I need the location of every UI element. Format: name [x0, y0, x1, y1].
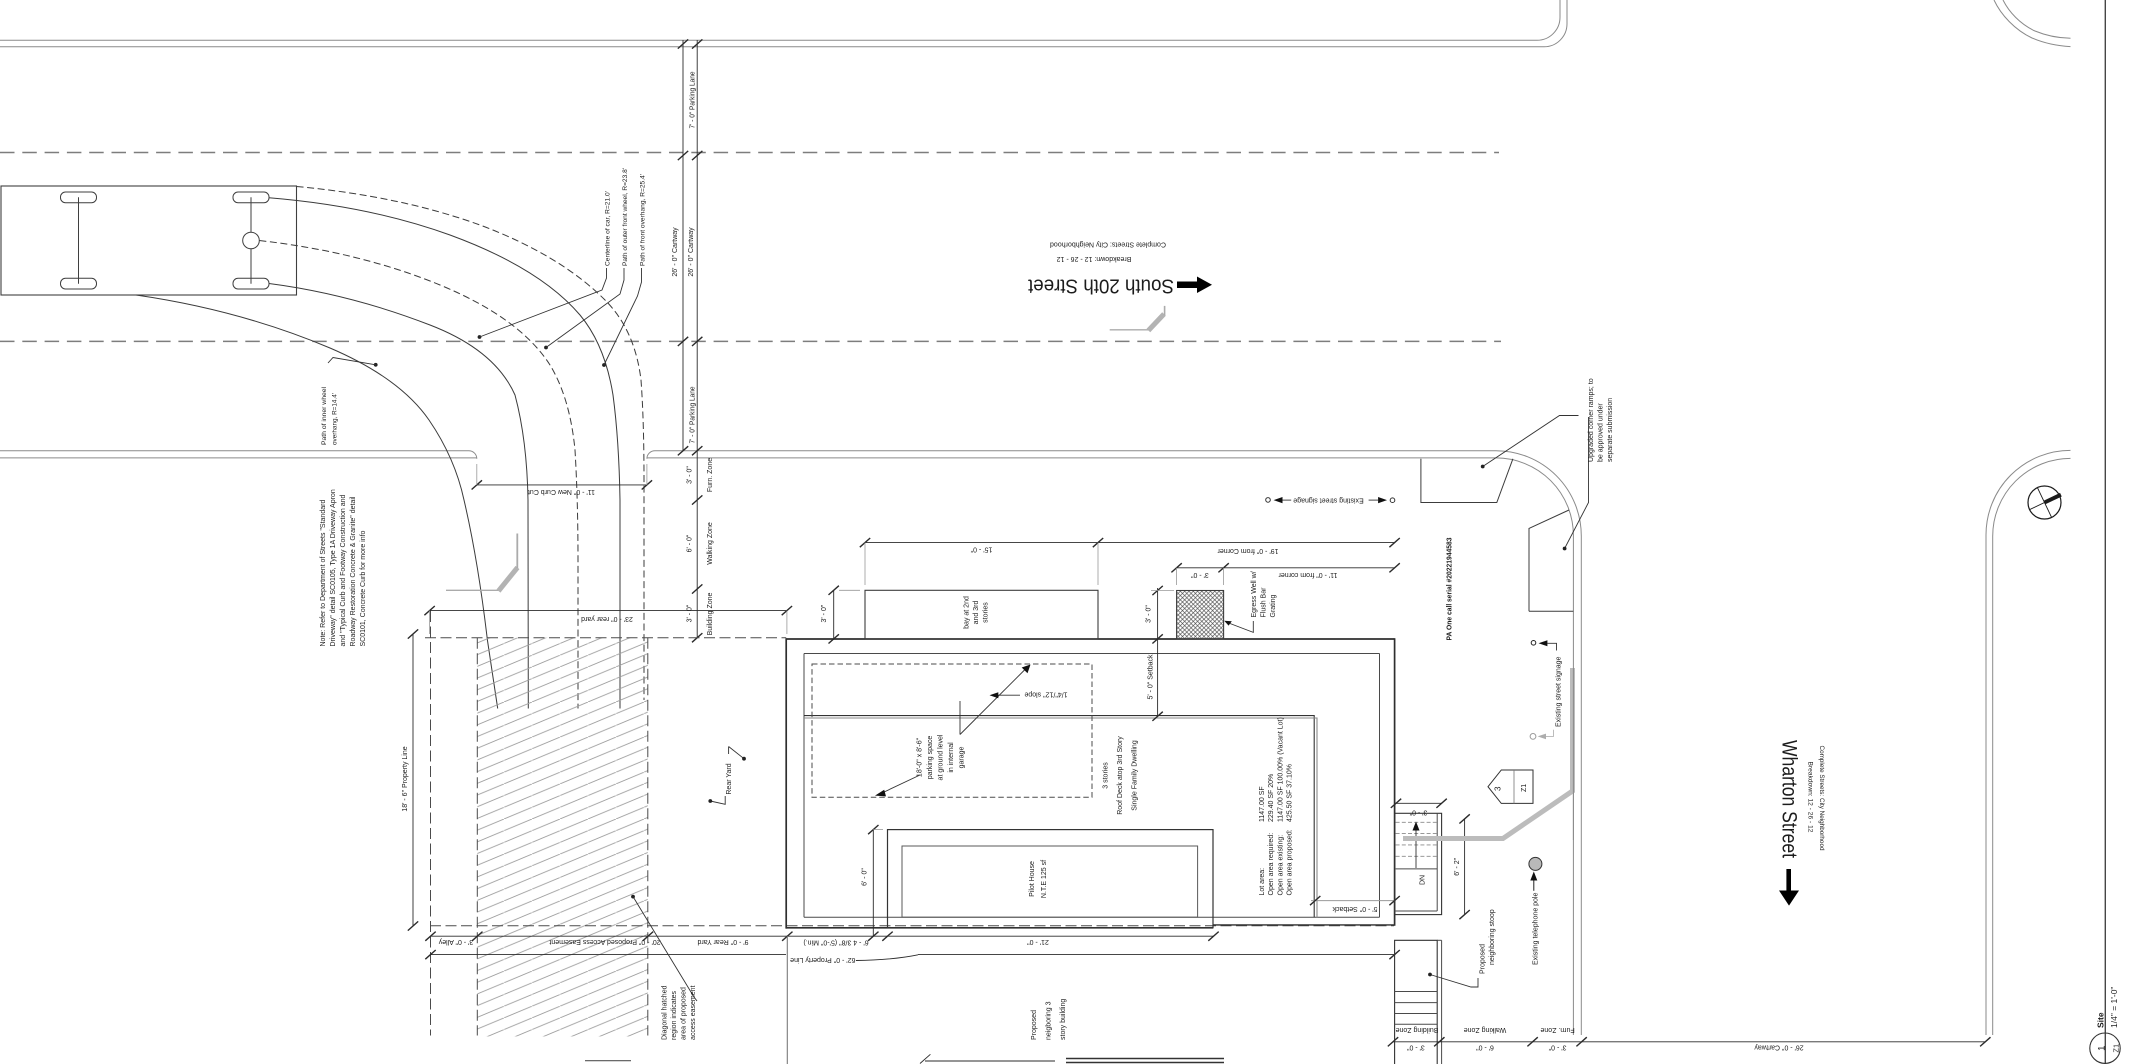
svg-text:South 20th Street: South 20th Street	[1028, 275, 1174, 298]
svg-text:Walking Zone: Walking Zone	[707, 522, 714, 565]
svg-text:26' - 0" Cartway: 26' - 0" Cartway	[688, 227, 695, 277]
svg-text:23' - 0" rear yard: 23' - 0" rear yard	[581, 615, 633, 622]
svg-text:PA One call serial #2022194458: PA One call serial #20221944583	[1444, 538, 1453, 641]
svg-text:Existing street signage: Existing street signage	[1556, 656, 1563, 727]
svg-text:Proposed: Proposed	[1031, 1010, 1038, 1040]
svg-text:area of proposed: area of proposed	[681, 987, 688, 1040]
svg-text:Proposed: Proposed	[1480, 944, 1487, 974]
svg-text:26' - 0" Cartway: 26' - 0" Cartway	[672, 227, 679, 277]
svg-text:Breakdown: 12 - 26 - 12: Breakdown: 12 - 26 - 12	[1807, 762, 1814, 833]
svg-text:229.40 SF 20%: 229.40 SF 20%	[1268, 774, 1275, 822]
svg-text:neigboring 3: neigboring 3	[1046, 1001, 1053, 1040]
svg-text:Lot area:: Lot area:	[1259, 868, 1266, 896]
svg-text:3' - 0" Alley: 3' - 0" Alley	[438, 938, 473, 945]
svg-text:5' - 0" Setback: 5' - 0" Setback	[1148, 654, 1155, 700]
svg-text:Existing telephone pole: Existing telephone pole	[1532, 893, 1539, 965]
svg-text:overhang, R=14.4': overhang, R=14.4'	[332, 393, 339, 445]
svg-text:3: 3	[1494, 786, 1503, 791]
svg-text:Path of inner wheel: Path of inner wheel	[321, 386, 328, 445]
svg-text:neighboring stoop: neighboring stoop	[1489, 909, 1496, 965]
svg-text:Site: Site	[2096, 1012, 2106, 1028]
svg-text:1/4"/12" slope: 1/4"/12" slope	[1024, 690, 1067, 697]
svg-text:5' - 0" Setback: 5' - 0" Setback	[1332, 905, 1378, 912]
svg-text:bay at 2nd: bay at 2nd	[964, 596, 971, 629]
svg-text:Centerline of car, R=21.0': Centerline of car, R=21.0'	[605, 191, 612, 266]
svg-text:garage: garage	[959, 746, 966, 768]
svg-text:Rear Yard: Rear Yard	[726, 763, 733, 794]
svg-text:7' - 0" Parking Lane: 7' - 0" Parking Lane	[690, 71, 697, 128]
svg-text:3' - 0": 3' - 0"	[1190, 571, 1208, 578]
svg-text:and "Typical Curb and Footway: and "Typical Curb and Footway Constructi…	[340, 494, 347, 646]
svg-text:3' - 0": 3' - 0"	[1146, 605, 1153, 623]
svg-text:3' - 0": 3' - 0"	[687, 604, 694, 622]
svg-text:Flush Bar: Flush Bar	[1261, 587, 1268, 618]
svg-text:Walking Zone: Walking Zone	[1464, 1026, 1507, 1033]
svg-text:6' - 0": 6' - 0"	[687, 534, 694, 552]
svg-text:Furn. Zone: Furn. Zone	[1540, 1026, 1574, 1033]
svg-text:1147.00 SF 100.00% (Vacant Lot: 1147.00 SF 100.00% (Vacant Lot)	[1277, 717, 1284, 822]
svg-text:stories: stories	[983, 602, 990, 623]
svg-text:Pilot House: Pilot House	[1029, 861, 1036, 897]
svg-text:region indicates: region indicates	[671, 990, 678, 1040]
svg-text:SC0101, Concrete Curb for more: SC0101, Concrete Curb for more info	[360, 530, 367, 646]
svg-text:Single Family Dwelling: Single Family Dwelling	[1132, 740, 1139, 811]
svg-text:Breakdown: 12 - 26 - 12: Breakdown: 12 - 26 - 12	[1057, 255, 1132, 262]
svg-text:DN: DN	[1420, 875, 1427, 885]
svg-text:9' - 0" Rear Yard: 9' - 0" Rear Yard	[697, 938, 748, 945]
svg-text:15' - 0": 15' - 0"	[970, 546, 992, 553]
svg-text:6' - 0": 6' - 0"	[1476, 1044, 1494, 1051]
svg-text:Path of front overhang, R=25.4: Path of front overhang, R=25.4'	[640, 174, 647, 266]
svg-text:Roadway Restoration Concrete &: Roadway Restoration Concrete & Granite" …	[350, 496, 357, 646]
svg-text:Path of outer front wheel, R=2: Path of outer front wheel, R=23.8'	[622, 168, 629, 266]
svg-text:18' - 6" Property Line: 18' - 6" Property Line	[402, 746, 409, 811]
svg-text:Diagonal hatched: Diagonal hatched	[662, 985, 669, 1040]
svg-text:Note: Refer to Department of S: Note: Refer to Department of Streets "St…	[320, 500, 327, 647]
svg-text:Building Zone: Building Zone	[707, 592, 714, 635]
svg-text:11' - 0" New Curb Cut: 11' - 0" New Curb Cut	[528, 488, 595, 495]
svg-text:Upgraded corner ramps; to: Upgraded corner ramps; to	[1588, 378, 1595, 462]
svg-text:Furn. Zone: Furn. Zone	[707, 458, 714, 492]
svg-text:Building Zone: Building Zone	[1395, 1026, 1438, 1033]
svg-text:parking space: parking space	[927, 736, 934, 780]
svg-text:1: 1	[2097, 1046, 2108, 1051]
svg-text:Complete Streets: City Neighbo: Complete Streets: City Neighborhood	[1050, 241, 1166, 248]
svg-text:Grating: Grating	[1270, 594, 1277, 617]
svg-text:Roof Deck atop 3rd Story: Roof Deck atop 3rd Story	[1117, 736, 1124, 815]
svg-text:N.T.E 125 sf: N.T.E 125 sf	[1041, 860, 1048, 898]
svg-text:3' - 0": 3' - 0"	[1406, 1044, 1424, 1051]
svg-text:19' - 0" from Corner: 19' - 0" from Corner	[1217, 547, 1279, 554]
svg-text:Open area existing:: Open area existing:	[1277, 835, 1284, 896]
svg-text:3' - 0": 3' - 0"	[821, 604, 828, 622]
svg-text:7' - 0" Parking Lane: 7' - 0" Parking Lane	[690, 386, 697, 443]
svg-text:3 stories: 3 stories	[1103, 762, 1110, 789]
svg-text:62' - 0" Property Line: 62' - 0" Property Line	[790, 956, 855, 963]
svg-text:Z1: Z1	[1521, 784, 1528, 792]
svg-text:separate submission: separate submission	[1607, 398, 1614, 462]
svg-text:3' - 0": 3' - 0"	[687, 466, 694, 484]
svg-text:21' - 0": 21' - 0"	[1027, 938, 1049, 945]
svg-text:Egress Well w/: Egress Well w/	[1251, 571, 1258, 617]
svg-text:1147.00 SF: 1147.00 SF	[1259, 786, 1266, 822]
svg-text:Open area proposed:: Open area proposed:	[1287, 829, 1294, 895]
svg-text:Driveway" detail SC0105, Type: Driveway" detail SC0105, Type 1A Drivewa…	[330, 489, 337, 646]
svg-text:3' - 0": 3' - 0"	[1409, 808, 1427, 815]
svg-text:Open area required:: Open area required:	[1268, 833, 1275, 896]
svg-text:Existing street signage: Existing street signage	[1293, 496, 1364, 503]
svg-text:story building: story building	[1060, 999, 1067, 1040]
svg-text:3' - 0": 3' - 0"	[1548, 1044, 1566, 1051]
svg-text:6' - 2": 6' - 2"	[1454, 857, 1461, 875]
svg-text:1/4" = 1'-0": 1/4" = 1'-0"	[2109, 987, 2119, 1028]
svg-text:in internal: in internal	[948, 742, 955, 773]
svg-text:Z1: Z1	[2112, 1044, 2121, 1053]
svg-text:be approved under: be approved under	[1598, 403, 1605, 462]
svg-text:20' - 0" Proposed Access Easem: 20' - 0" Proposed Access Easement	[549, 938, 660, 945]
svg-text:6' - 0": 6' - 0"	[862, 868, 869, 886]
svg-text:26' - 0" Cartway: 26' - 0" Cartway	[1754, 1044, 1804, 1051]
svg-text:Complete Streets: City Neighbo: Complete Streets: City Neighborhood	[1818, 746, 1825, 851]
svg-text:6' - 4 3/8" (5'-0" Min.): 6' - 4 3/8" (5'-0" Min.)	[803, 939, 868, 946]
svg-text:Wharton Street: Wharton Street	[1778, 740, 1801, 858]
svg-text:at ground level: at ground level	[938, 734, 945, 780]
svg-text:access easement: access easement	[690, 985, 697, 1040]
svg-text:and 3rd: and 3rd	[973, 601, 980, 625]
svg-text:18'-0" x 8'-6": 18'-0" x 8'-6"	[917, 737, 924, 777]
svg-text:425.50 SF 37.10%: 425.50 SF 37.10%	[1287, 764, 1294, 822]
svg-text:11' - 0" from corner: 11' - 0" from corner	[1278, 571, 1338, 578]
